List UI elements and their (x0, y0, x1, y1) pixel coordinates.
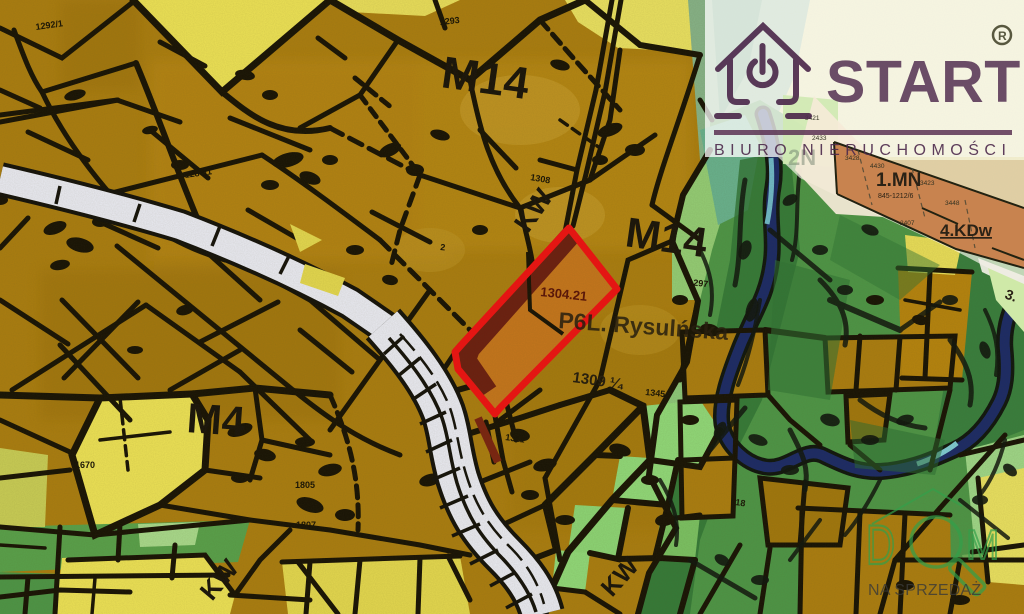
svg-text:4430: 4430 (870, 163, 885, 170)
svg-text:2407: 2407 (900, 220, 915, 227)
svg-text:R: R (998, 29, 1007, 43)
svg-text:845-1212/6: 845-1212/6 (878, 193, 914, 200)
svg-text:4.KDw: 4.KDw (940, 221, 993, 240)
svg-text:BIURO NIERUCHOMOŚCI: BIURO NIERUCHOMOŚCI (714, 140, 1011, 159)
svg-text:D: D (866, 515, 895, 577)
svg-text:3423: 3423 (920, 180, 935, 187)
svg-text:NA SPRZEDAŻ: NA SPRZEDAŻ (868, 580, 981, 599)
svg-text:1.MN: 1.MN (876, 170, 921, 191)
svg-text:3448: 3448 (945, 200, 960, 207)
svg-text:M: M (966, 521, 999, 568)
svg-text:START: START (826, 49, 1021, 115)
svg-text:2433: 2433 (812, 135, 827, 142)
